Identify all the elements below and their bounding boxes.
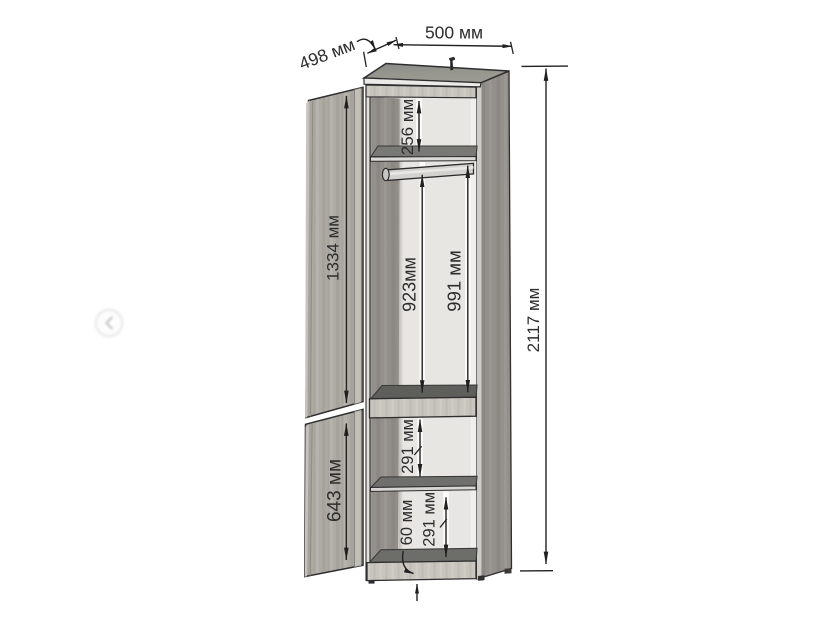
svg-text:1334 мм: 1334 мм <box>324 215 343 281</box>
svg-text:991 мм: 991 мм <box>444 250 465 311</box>
svg-text:500 мм: 500 мм <box>425 23 483 43</box>
svg-text:60 мм: 60 мм <box>398 500 416 546</box>
svg-text:643 мм: 643 мм <box>324 459 345 522</box>
svg-text:2117 мм: 2117 мм <box>524 288 543 353</box>
svg-text:291 мм: 291 мм <box>399 419 417 474</box>
svg-text:923мм: 923мм <box>399 257 419 312</box>
svg-text:256 мм: 256 мм <box>398 99 417 155</box>
svg-text:291 мм: 291 мм <box>420 492 438 547</box>
